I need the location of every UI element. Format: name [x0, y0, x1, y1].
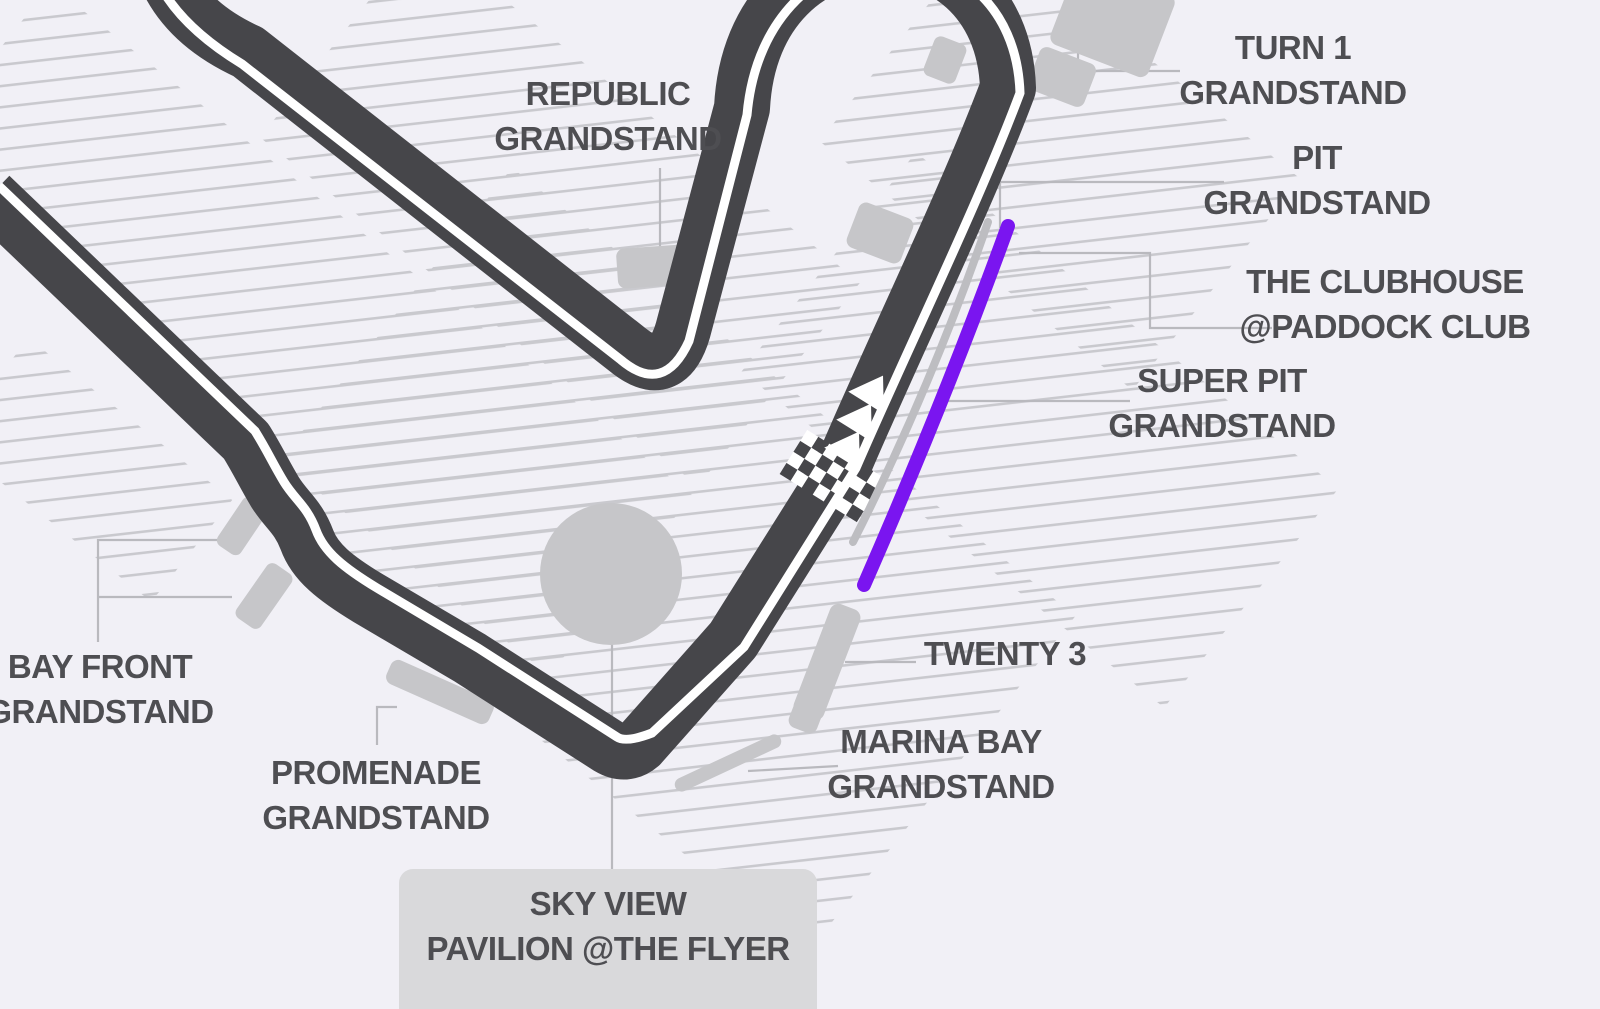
label-line: THE CLUBHOUSE	[1240, 259, 1531, 304]
label-line: PROMENADE	[262, 750, 489, 795]
label-marina-bay-grandstand[interactable]: MARINA BAY GRANDSTAND	[827, 719, 1054, 809]
label-line: REPUBLIC	[494, 71, 721, 116]
label-promenade-grandstand[interactable]: PROMENADE GRANDSTAND	[262, 750, 489, 840]
label-line: GRANDSTAND	[262, 795, 489, 840]
label-republic-grandstand[interactable]: REPUBLIC GRANDSTAND	[494, 71, 721, 161]
label-line: TWENTY 3	[924, 631, 1086, 676]
label-line: GRANDSTAND	[0, 689, 214, 734]
label-line: GRANDSTAND	[1108, 403, 1335, 448]
flyer-wheel-circle[interactable]	[540, 503, 682, 645]
label-pit-grandstand[interactable]: PIT GRANDSTAND	[1203, 135, 1430, 225]
label-super-pit-grandstand[interactable]: SUPER PIT GRANDSTAND	[1108, 358, 1335, 448]
label-sky-view-pavilion[interactable]: SKY VIEW PAVILION @THE FLYER	[399, 869, 817, 1009]
label-turn1-grandstand[interactable]: TURN 1 GRANDSTAND	[1179, 25, 1406, 115]
label-line: GRANDSTAND	[1203, 180, 1430, 225]
label-line: PIT	[1203, 135, 1430, 180]
label-twenty3[interactable]: TWENTY 3	[924, 631, 1086, 676]
label-line: GRANDSTAND	[1179, 70, 1406, 115]
label-line: PAVILION @THE FLYER	[399, 926, 817, 971]
label-line: GRANDSTAND	[494, 116, 721, 161]
label-line: SKY VIEW	[399, 881, 817, 926]
label-clubhouse-paddock-club[interactable]: THE CLUBHOUSE @PADDOCK CLUB	[1240, 259, 1531, 349]
label-line: TURN 1	[1179, 25, 1406, 70]
circuit-map: REPUBLIC GRANDSTAND TURN 1 GRANDSTAND PI…	[0, 0, 1600, 1000]
label-line: MARINA BAY	[827, 719, 1054, 764]
label-line: BAY FRONT	[0, 644, 214, 689]
leader-promenade	[377, 707, 397, 745]
label-line: SUPER PIT	[1108, 358, 1335, 403]
label-line: @PADDOCK CLUB	[1240, 304, 1531, 349]
label-line: GRANDSTAND	[827, 764, 1054, 809]
block-bay-front-grandstand-b[interactable]	[233, 560, 295, 631]
label-bay-front-grandstand[interactable]: BAY FRONT GRANDSTAND	[0, 644, 214, 734]
